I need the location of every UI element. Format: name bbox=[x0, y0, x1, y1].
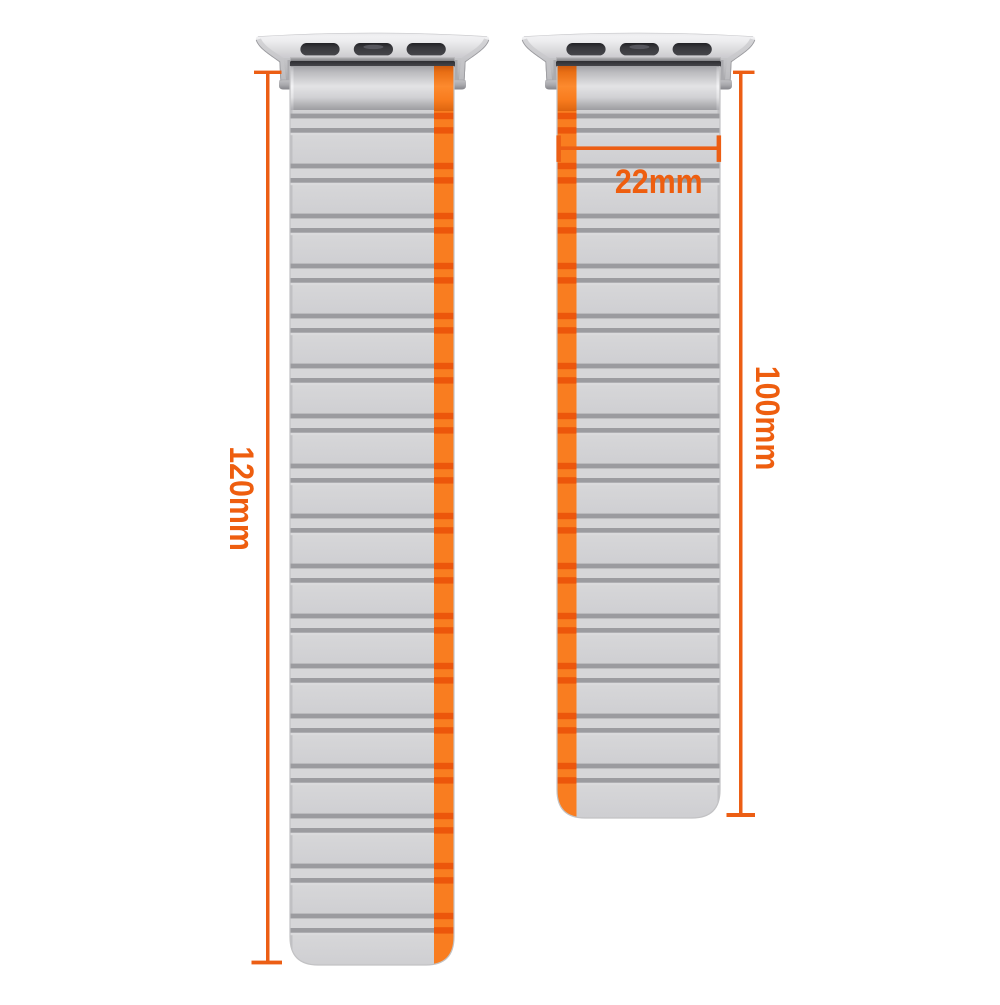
svg-text:22mm: 22mm bbox=[615, 162, 703, 200]
svg-text:100mm: 100mm bbox=[748, 366, 786, 471]
svg-text:120mm: 120mm bbox=[222, 446, 260, 551]
